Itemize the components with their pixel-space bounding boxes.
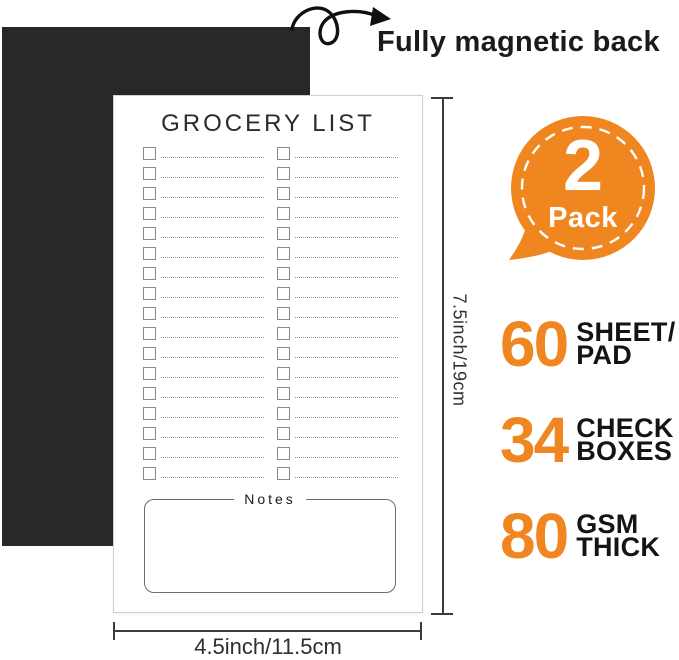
height-dimension-line [442, 98, 444, 614]
checkbox-icon [143, 207, 156, 220]
dotted-line [295, 477, 398, 478]
checklist-item [143, 443, 264, 463]
dotted-line [161, 457, 264, 458]
checkbox-icon [143, 407, 156, 420]
badge-label: Pack [503, 202, 663, 235]
dotted-line [295, 297, 398, 298]
checkbox-icon [277, 147, 290, 160]
checkbox-icon [277, 387, 290, 400]
checklist-item [277, 243, 398, 263]
checklist-item [277, 463, 398, 483]
spec-sheets-per-pad: 60 SHEET/ PAD [500, 316, 676, 372]
checkbox-icon [277, 327, 290, 340]
checkbox-icon [277, 227, 290, 240]
spec-gsm-thickness: 80 GSM THICK [500, 508, 676, 564]
dotted-line [161, 177, 264, 178]
product-image: Fully magnetic back GROCERY LIST Notes 7… [0, 0, 679, 660]
checklist-row [143, 383, 398, 403]
checklist-item [277, 303, 398, 323]
spec-label: GSM THICK [576, 513, 660, 559]
checklist-item [143, 243, 264, 263]
checklist-item [277, 163, 398, 183]
spec-label-line2: PAD [576, 344, 675, 367]
dotted-line [295, 317, 398, 318]
checkbox-icon [277, 467, 290, 480]
dotted-line [161, 437, 264, 438]
dotted-line [295, 237, 398, 238]
dotted-line [161, 377, 264, 378]
checklist-item [277, 143, 398, 163]
checklist-row [143, 303, 398, 323]
checklist-row [143, 163, 398, 183]
checklist-row [143, 223, 398, 243]
checklist-item [277, 183, 398, 203]
checkbox-icon [277, 407, 290, 420]
checkbox-icon [277, 287, 290, 300]
checklist-item [143, 143, 264, 163]
checklist-row [143, 143, 398, 163]
checkbox-icon [143, 267, 156, 280]
dotted-line [295, 437, 398, 438]
spec-label-line2: BOXES [576, 440, 674, 463]
height-dimension-tick-top [431, 97, 453, 99]
checkbox-icon [277, 447, 290, 460]
checklist-row [143, 343, 398, 363]
checklist-item [143, 263, 264, 283]
checkbox-icon [277, 207, 290, 220]
checklist-item [143, 223, 264, 243]
checkbox-icon [277, 347, 290, 360]
dotted-line [161, 417, 264, 418]
notepad-title: GROCERY LIST [114, 110, 422, 138]
dotted-line [295, 157, 398, 158]
dotted-line [295, 417, 398, 418]
checklist-row [143, 443, 398, 463]
checkbox-icon [277, 187, 290, 200]
checkbox-icon [277, 367, 290, 380]
checklist-row [143, 183, 398, 203]
checklist-item [143, 403, 264, 423]
dotted-line [161, 157, 264, 158]
dotted-line [295, 377, 398, 378]
checkbox-icon [143, 147, 156, 160]
checklist-row [143, 283, 398, 303]
checklist-row [143, 423, 398, 443]
checklist-item [277, 383, 398, 403]
checkbox-icon [143, 287, 156, 300]
dotted-line [295, 277, 398, 278]
checklist-item [277, 323, 398, 343]
checkbox-icon [143, 447, 156, 460]
checklist-item [277, 403, 398, 423]
dotted-line [161, 237, 264, 238]
dotted-line [161, 197, 264, 198]
checklist-item [277, 203, 398, 223]
spec-check-boxes: 34 CHECK BOXES [500, 412, 676, 468]
dotted-line [295, 337, 398, 338]
checklist-item [143, 343, 264, 363]
dotted-line [161, 397, 264, 398]
height-dimension-tick-bottom [431, 613, 453, 615]
checkbox-icon [143, 467, 156, 480]
checklist-item [277, 423, 398, 443]
checklist-item [277, 443, 398, 463]
checklist-row [143, 323, 398, 343]
checklist-row [143, 203, 398, 223]
dotted-line [295, 357, 398, 358]
header-caption: Fully magnetic back [377, 26, 660, 59]
checkbox-icon [277, 427, 290, 440]
checklist-row [143, 403, 398, 423]
checklist-item [143, 163, 264, 183]
dotted-line [295, 177, 398, 178]
dotted-line [161, 277, 264, 278]
checkbox-icon [277, 247, 290, 260]
checklist-item [143, 383, 264, 403]
dotted-line [161, 297, 264, 298]
dotted-line [295, 457, 398, 458]
checkbox-icon [143, 327, 156, 340]
spec-value: 60 [500, 316, 567, 372]
checklist-row [143, 263, 398, 283]
checklist-item [143, 283, 264, 303]
checklist-item [277, 223, 398, 243]
checklist-item [143, 303, 264, 323]
grocery-notepad: GROCERY LIST Notes [113, 95, 423, 613]
checkbox-icon [143, 227, 156, 240]
width-dimension-line [114, 630, 422, 632]
dotted-line [161, 357, 264, 358]
dotted-line [295, 397, 398, 398]
dotted-line [161, 217, 264, 218]
badge-count: 2 [503, 128, 663, 204]
checklist-item [143, 363, 264, 383]
checklist-item [277, 363, 398, 383]
dotted-line [295, 197, 398, 198]
checklist-item [277, 263, 398, 283]
checkbox-icon [143, 307, 156, 320]
height-dimension-label: 7.5inch/19cm [449, 293, 470, 406]
checklist [143, 143, 398, 483]
checkbox-icon [143, 427, 156, 440]
spec-value: 34 [500, 412, 567, 468]
dotted-line [161, 337, 264, 338]
dotted-line [295, 257, 398, 258]
checkbox-icon [143, 367, 156, 380]
checklist-item [143, 183, 264, 203]
notes-box: Notes [144, 499, 396, 593]
spec-label: SHEET/ PAD [576, 321, 675, 367]
checklist-row [143, 363, 398, 383]
checkbox-icon [277, 307, 290, 320]
checklist-item [143, 323, 264, 343]
dotted-line [161, 317, 264, 318]
checkbox-icon [277, 267, 290, 280]
checklist-item [143, 203, 264, 223]
checkbox-icon [143, 187, 156, 200]
dotted-line [295, 217, 398, 218]
dotted-line [161, 257, 264, 258]
checkbox-icon [277, 167, 290, 180]
width-dimension-label: 4.5inch/11.5cm [114, 634, 422, 660]
checklist-item [277, 343, 398, 363]
spec-value: 80 [500, 508, 567, 564]
notes-label: Notes [234, 491, 306, 507]
checkbox-icon [143, 167, 156, 180]
checklist-item [143, 463, 264, 483]
specs-list: 60 SHEET/ PAD 34 CHECK BOXES 80 GSM THIC… [500, 316, 676, 604]
spec-label-line2: THICK [576, 536, 660, 559]
spec-label: CHECK BOXES [576, 417, 674, 463]
checklist-item [143, 423, 264, 443]
checklist-item [277, 283, 398, 303]
checkbox-icon [143, 387, 156, 400]
checkbox-icon [143, 347, 156, 360]
checklist-row [143, 243, 398, 263]
checklist-row [143, 463, 398, 483]
checkbox-icon [143, 247, 156, 260]
dotted-line [161, 477, 264, 478]
